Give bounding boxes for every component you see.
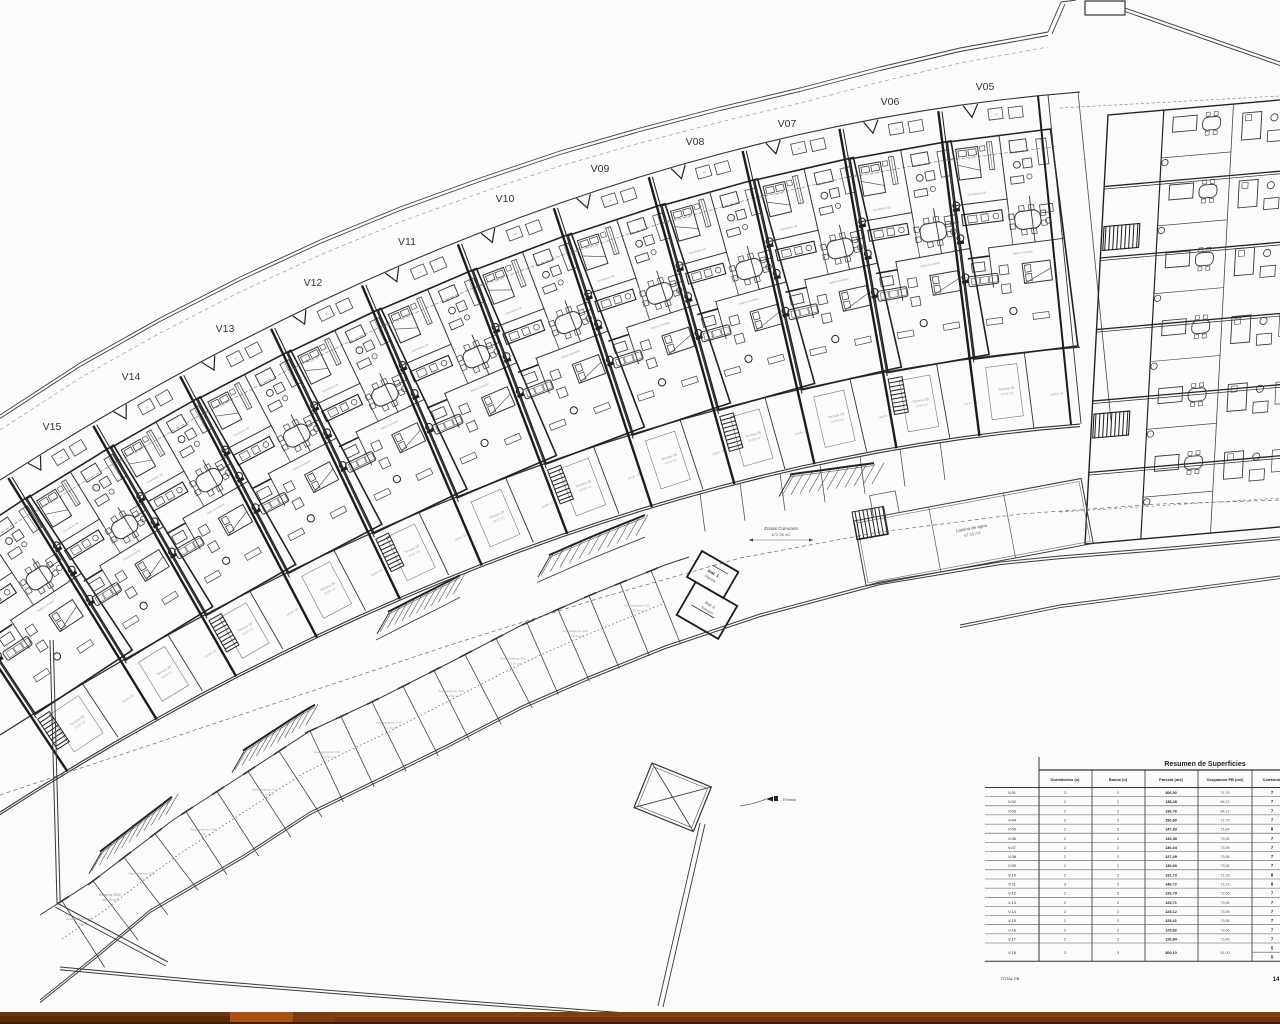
svg-text:V-14: V-14 [1008, 910, 1016, 914]
svg-text:3: 3 [1117, 951, 1119, 955]
svg-text:73,06: 73,06 [1221, 855, 1230, 859]
svg-text:12,50 m2: 12,50 m2 [75, 922, 87, 926]
svg-text:V-02: V-02 [1008, 800, 1016, 804]
svg-text:2: 2 [1117, 928, 1119, 932]
svg-text:2: 2 [1064, 864, 1066, 868]
svg-text:2: 2 [1117, 910, 1119, 914]
svg-text:Dormitorios (n): Dormitorios (n) [1051, 777, 1081, 782]
svg-text:12,50 m2: 12,50 m2 [447, 694, 459, 698]
svg-text:73,06: 73,06 [1221, 901, 1230, 905]
svg-text:V-18: V-18 [1008, 951, 1016, 955]
svg-text:2: 2 [1064, 928, 1066, 932]
svg-text:73,06: 73,06 [1221, 910, 1230, 914]
svg-text:12,50 m2: 12,50 m2 [385, 725, 397, 729]
svg-text:V14: V14 [122, 371, 141, 383]
svg-text:306,92: 306,92 [1165, 791, 1177, 795]
svg-text:2: 2 [1117, 901, 1119, 905]
svg-text:Aparcamiento V19: Aparcamiento V19 [376, 720, 402, 724]
svg-text:V-09: V-09 [1008, 864, 1016, 868]
svg-text:2: 2 [1117, 791, 1119, 795]
svg-text:Aparcamiento V21: Aparcamiento V21 [500, 657, 526, 661]
svg-text:V-12: V-12 [1008, 892, 1016, 896]
svg-text:V-01: V-01 [1008, 791, 1016, 795]
svg-text:12,50 m2: 12,50 m2 [137, 876, 149, 880]
svg-text:2: 2 [1064, 828, 1066, 832]
svg-text:V-07: V-07 [1008, 846, 1016, 850]
svg-text:Zonas Comunes: Zonas Comunes [764, 526, 798, 531]
svg-text:2: 2 [1117, 883, 1119, 887]
svg-text:V-17: V-17 [1008, 937, 1016, 941]
svg-text:2: 2 [1064, 846, 1066, 850]
svg-text:Banos (n): Banos (n) [1109, 777, 1128, 782]
svg-text:Aparcamiento V17: Aparcamiento V17 [252, 787, 278, 791]
svg-text:Aparcamiento V20: Aparcamiento V20 [438, 689, 464, 693]
svg-text:2: 2 [1117, 873, 1119, 877]
svg-text:2: 2 [1117, 809, 1119, 813]
svg-text:V15: V15 [43, 421, 62, 433]
svg-text:Aparcamiento V22: Aparcamiento V22 [562, 629, 588, 633]
svg-text:133,98: 133,98 [1165, 837, 1177, 841]
svg-text:136,04: 136,04 [1165, 846, 1178, 850]
svg-text:73,06: 73,06 [1221, 892, 1230, 896]
svg-text:V-11: V-11 [1008, 883, 1016, 887]
svg-text:300,10: 300,10 [1165, 951, 1177, 955]
svg-text:125,71: 125,71 [1165, 901, 1177, 905]
svg-text:120,84: 120,84 [1165, 937, 1178, 941]
svg-text:V-03: V-03 [1008, 809, 1016, 813]
svg-text:3: 3 [1064, 951, 1066, 955]
svg-text:2: 2 [1117, 919, 1119, 923]
svg-text:190,80: 190,80 [1165, 819, 1177, 823]
svg-text:125,41: 125,41 [1165, 919, 1177, 923]
svg-text:3: 3 [1064, 883, 1066, 887]
svg-text:V12: V12 [304, 277, 323, 289]
svg-text:Aparcamiento V23: Aparcamiento V23 [624, 603, 650, 607]
svg-text:126,79: 126,79 [1165, 892, 1177, 896]
svg-text:Reserva TiO2: Reserva TiO2 [99, 893, 121, 897]
svg-text:125,92: 125,92 [1165, 928, 1177, 932]
svg-text:V-10: V-10 [1008, 873, 1016, 877]
svg-text:Aparcamiento V18: Aparcamiento V18 [314, 750, 340, 754]
svg-text:V-08: V-08 [1008, 855, 1016, 859]
svg-text:2: 2 [1064, 809, 1066, 813]
svg-text:71,18: 71,18 [1221, 873, 1230, 877]
svg-text:131,73: 131,73 [1165, 873, 1177, 877]
svg-text:2: 2 [1064, 919, 1066, 923]
svg-text:2: 2 [1064, 819, 1066, 823]
svg-text:Parcela (m2): Parcela (m2) [1159, 777, 1183, 782]
svg-text:Ocupacion PB (m2): Ocupacion PB (m2) [1207, 777, 1245, 782]
svg-text:71,64: 71,64 [1221, 828, 1230, 832]
svg-text:2: 2 [1064, 800, 1066, 804]
svg-text:2: 2 [1117, 800, 1119, 804]
svg-text:71,13: 71,13 [1221, 883, 1230, 887]
svg-text:V11: V11 [398, 236, 416, 248]
svg-text:73,06: 73,06 [1221, 864, 1230, 868]
svg-text:51,00: 51,00 [1221, 951, 1230, 955]
svg-text:146,72: 146,72 [1165, 883, 1177, 887]
svg-text:12,50 m2: 12,50 m2 [323, 755, 335, 759]
svg-text:Resumen de Superficies: Resumen de Superficies [1164, 761, 1245, 768]
svg-text:V-15: V-15 [1008, 919, 1016, 923]
svg-text:2: 2 [1064, 873, 1066, 877]
svg-text:138,28: 138,28 [1165, 800, 1177, 804]
svg-text:872,28 m2: 872,28 m2 [772, 532, 792, 537]
svg-text:127,49: 127,49 [1165, 855, 1177, 859]
svg-text:2: 2 [1117, 937, 1119, 941]
svg-text:V-05: V-05 [1008, 828, 1016, 832]
svg-text:2: 2 [1117, 819, 1119, 823]
svg-text:73,06: 73,06 [1221, 846, 1230, 850]
svg-text:73,06: 73,06 [1221, 919, 1230, 923]
svg-text:Construid: Construid [1263, 777, 1280, 782]
svg-text:73,46: 73,46 [1221, 937, 1230, 941]
svg-text:84,13: 84,13 [1221, 800, 1230, 804]
svg-text:V-04: V-04 [1008, 819, 1016, 823]
svg-text:V-06: V-06 [1008, 837, 1016, 841]
svg-text:V05: V05 [976, 81, 995, 93]
svg-text:147,83: 147,83 [1165, 828, 1177, 832]
svg-text:73,06: 73,06 [1221, 928, 1230, 932]
svg-text:2: 2 [1064, 892, 1066, 896]
svg-text:300,00 m2: 300,00 m2 [102, 898, 118, 902]
svg-text:136,76: 136,76 [1165, 809, 1177, 813]
svg-text:Aparcamiento V15: Aparcamiento V15 [128, 871, 154, 875]
svg-text:V06: V06 [881, 96, 900, 108]
svg-text:V09: V09 [591, 163, 610, 175]
svg-text:71,75: 71,75 [1221, 791, 1230, 795]
svg-text:V10: V10 [496, 193, 515, 205]
svg-text:V-13: V-13 [1008, 901, 1016, 905]
svg-text:TOTAL PB: TOTAL PB [1001, 976, 1020, 981]
svg-text:2: 2 [1064, 855, 1066, 859]
svg-text:14: 14 [1273, 977, 1280, 983]
svg-text:2: 2 [1064, 837, 1066, 841]
svg-text:130,69: 130,69 [1165, 864, 1177, 868]
svg-text:V07: V07 [778, 118, 797, 130]
svg-text:Aparcamiento V16: Aparcamiento V16 [190, 828, 216, 832]
svg-text:2: 2 [1117, 864, 1119, 868]
svg-text:12,50 m2: 12,50 m2 [509, 662, 521, 666]
svg-text:V13: V13 [216, 323, 235, 335]
svg-text:2: 2 [1117, 828, 1119, 832]
svg-text:12,50 m2: 12,50 m2 [571, 634, 583, 638]
svg-text:71,75: 71,75 [1221, 819, 1230, 823]
svg-text:2: 2 [1064, 910, 1066, 914]
svg-text:2: 2 [1117, 892, 1119, 896]
svg-text:73,06: 73,06 [1221, 837, 1230, 841]
svg-text:2: 2 [1064, 901, 1066, 905]
svg-text:84,12: 84,12 [1221, 809, 1230, 813]
svg-text:2: 2 [1117, 846, 1119, 850]
svg-text:12,50 m2: 12,50 m2 [633, 608, 645, 612]
svg-text:2: 2 [1117, 855, 1119, 859]
svg-text:Entrada: Entrada [783, 798, 797, 802]
svg-text:125,12: 125,12 [1165, 910, 1177, 914]
svg-text:V08: V08 [686, 136, 705, 148]
svg-text:2: 2 [1064, 937, 1066, 941]
svg-text:V-16: V-16 [1008, 928, 1016, 932]
svg-text:2: 2 [1117, 837, 1119, 841]
svg-text:3: 3 [1064, 791, 1066, 795]
svg-text:12,50 m2: 12,50 m2 [261, 792, 273, 796]
